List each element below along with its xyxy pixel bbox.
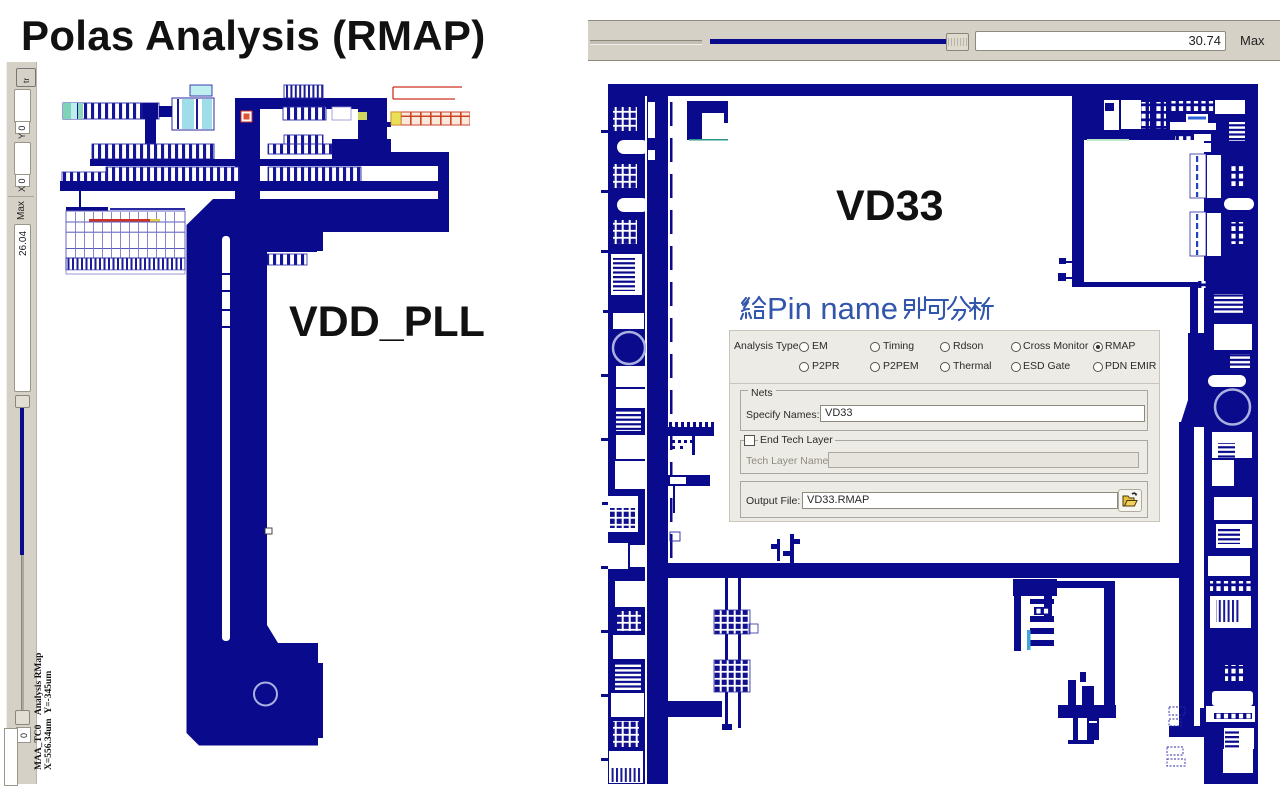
svg-text:Pin name: Pin name [767, 293, 898, 326]
